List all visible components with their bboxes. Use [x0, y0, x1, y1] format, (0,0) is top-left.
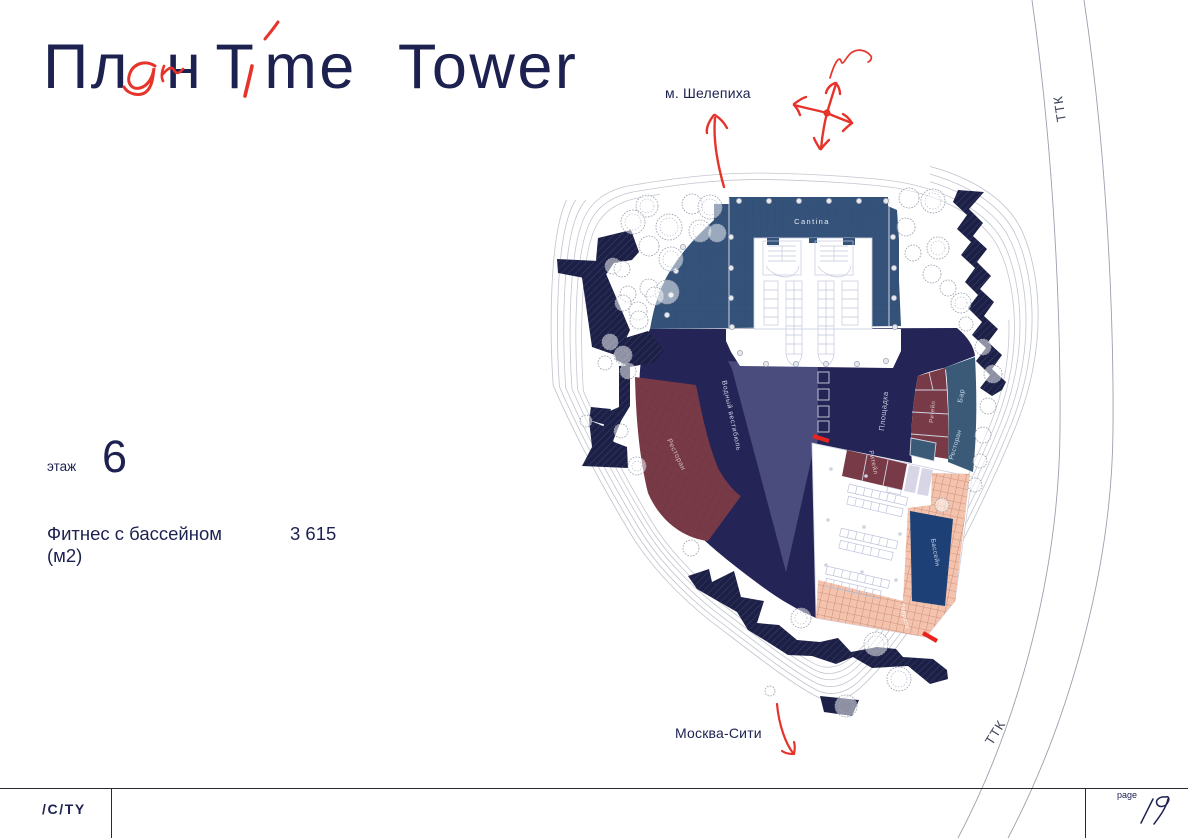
svg-text:Cantina: Cantina	[794, 217, 830, 226]
svg-text:ТТК: ТТК	[1050, 94, 1069, 122]
